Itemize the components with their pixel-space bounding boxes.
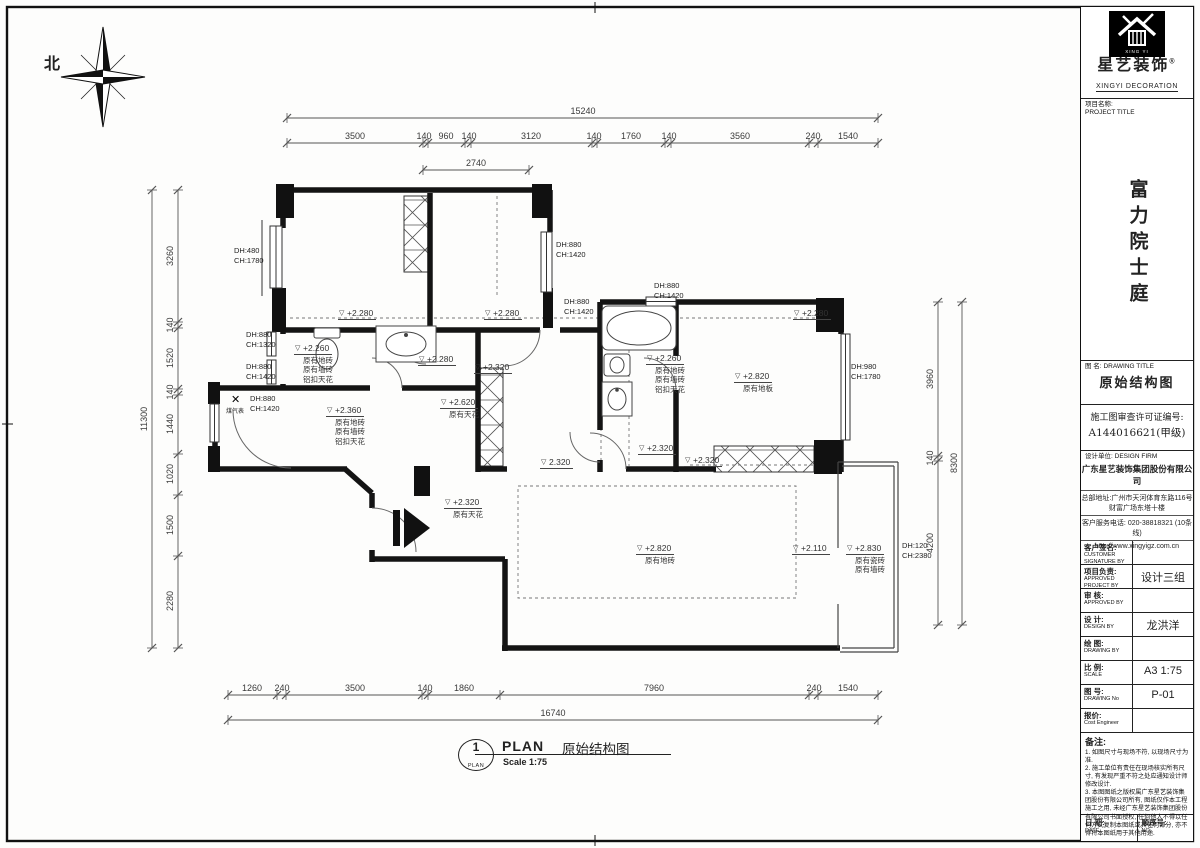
opening-size-label: DH:480CH:1780 [234,246,264,266]
opening-size-label: DH:880CH:1420 [246,362,276,382]
frame-center-ticks [2,2,595,846]
dimension-label: 140 [416,131,431,141]
dimension-label: 1860 [454,683,474,693]
field-value: 设计三组 [1133,565,1193,588]
title-block: XING YI 星艺装饰® XINGYI DECORATION 项目名称:PRO… [1081,7,1193,841]
field-value: 龙洪洋 [1133,613,1193,636]
field-label: 图 号:DRAWING No [1081,685,1133,708]
level-label: +2.820▽原有地板 [734,366,773,393]
dimension-label: 140 [165,317,175,332]
footer-row: 日 期: DATE 顺序号: NO. [1081,815,1193,841]
level-label: +2.830▽原有瓷砖原有墙砖 [846,538,885,575]
signoff-row: 比 例:SCALEA3 1:75 [1081,661,1193,685]
dimension-label: 140 [417,683,432,693]
firm-address-1: 总部地址:广州市天河体育东路116号 [1081,490,1193,503]
field-value [1133,541,1193,564]
opening-size-label: DH:980CH:1780 [851,362,881,382]
dimension-label: 140 [165,384,175,399]
dimension-label: 7960 [644,683,664,693]
level-label: +2.260▽原有地砖原有墙砖铝扣天花 [294,338,333,384]
entrance-arrow-icon [393,508,430,548]
project-name: 富力院士庭 [1081,139,1193,349]
firm-address-2: 财富广场东塔十楼 [1081,503,1193,513]
brand-name-cn: 星艺装饰® [1081,58,1193,75]
field-label: 报价:Cost Engineer [1081,709,1133,732]
dimension-label: 3120 [521,131,541,141]
level-label: +2.260▽原有地砖原有墙砖铝扣天花 [646,348,685,394]
dimension-label: 240 [806,683,821,693]
level-label: +2.820▽原有地砖 [636,538,675,565]
drawing-title-label: 图 名: DRAWING TITLE [1081,361,1193,371]
dimension-label: 3560 [730,131,750,141]
dimension-label: 2740 [466,158,486,168]
plan-number-bubble: 1 PLAN [458,739,494,771]
dimension-label: 3960 [925,369,935,389]
dimension-label: 1540 [838,683,858,693]
note-item: 2. 施工单位有责任在现场核实所有尺寸, 有发现严重不符之处应通知设计师修改设计… [1081,765,1193,789]
drawing-title-value: 原始结构图 [1081,372,1193,391]
dimension-label: 11300 [139,407,149,431]
dimension-label: 140 [461,131,476,141]
gas-meter-icon: ✕ [231,393,240,406]
registered-mark: ® [1169,59,1176,66]
dimension-label: 1020 [165,464,175,484]
dimension-label: 3500 [345,683,365,693]
firm-phone: 客户服务电话: 020-38818321 (10条线) [1081,515,1193,538]
dimension-label: 140 [661,131,676,141]
plan-number-sub: PLAN [459,763,493,769]
signoff-row: 审 核:APPROVED BY [1081,589,1193,613]
signoff-row: 图 号:DRAWING NoP-01 [1081,685,1193,709]
level-label: +2.620▽原有天花 [440,392,479,419]
dimension-label: 1500 [165,515,175,535]
level-label: +2.320▽ [638,438,676,456]
project-section: 项目名称:PROJECT TITLE 富力院士庭 [1081,99,1193,361]
design-firm-section: 设计单位: DESIGN FIRM 广东星艺装饰集团股份有限公司 总部地址:广州… [1081,451,1193,541]
drawing-sheet: 北 15240350014096014031201401760140356024… [0,0,1200,848]
level-label: +2.320▽ [684,450,722,468]
note-item: 1. 如图尺寸与现场不符, 以现场尺寸为准. [1081,749,1193,765]
opening-size-label: DH:880CH:1420 [564,297,594,317]
dimension-label: 1440 [165,414,175,434]
dimension-label: 15240 [570,106,595,116]
permit-label: 施工图审查许可证编号: [1081,410,1193,423]
field-value: P-01 [1133,685,1193,708]
logo-caption: XING YI [1109,49,1165,54]
dimension-label: 140 [925,450,935,465]
company-logo-icon: XING YI [1109,11,1165,57]
field-label: 审 核:APPROVED BY [1081,589,1133,612]
field-label: 设 计:DESIGN BY [1081,613,1133,636]
dimension-label: 16740 [540,708,565,718]
opening-size-label: DH:880CH:1420 [250,394,280,414]
permit-number: A144016621(甲级) [1081,425,1193,440]
level-label: +2.280▽ [338,303,376,321]
opening-size-label: DH:880CH:1420 [556,240,586,260]
plan-number: 1 [459,740,493,754]
dimension-label: 2280 [165,591,175,611]
gas-meter-label: 煤气表 [226,406,244,415]
level-label: +2.360▽原有地砖原有墙砖铝扣天花 [326,400,365,446]
field-label: 客户签名:CUSTOMER SIGNATURE BY [1081,541,1133,564]
level-label: 2.320▽ [540,452,573,470]
dimension-label: 1520 [165,348,175,368]
plan-title: 1 PLAN PLAN 原始结构图 Scale 1:75 [458,736,688,780]
level-label: +2.280▽ [418,349,456,367]
dimension-label: 1260 [242,683,262,693]
brand-name-en: XINGYI DECORATION [1096,83,1178,92]
floor-plan-drawing [0,0,1200,848]
field-value [1133,589,1193,612]
signoff-row: 绘 图:DRAWING BY [1081,637,1193,661]
walls [215,190,841,651]
field-value [1133,637,1193,660]
notes-section: 备注: 1. 如图尺寸与现场不符, 以现场尺寸为准.2. 施工单位有责任在现场核… [1081,733,1193,815]
dimension-label: 3500 [345,131,365,141]
signoff-row: 设 计:DESIGN BY龙洪洋 [1081,613,1193,637]
date-cell: 日 期: DATE [1081,815,1138,841]
plan-scale: Scale 1:75 [503,757,547,767]
dimension-label: 960 [438,131,453,141]
dimension-label: 140 [586,131,601,141]
dimension-label: 8300 [949,453,959,473]
notes-label: 备注: [1081,733,1193,749]
plan-name: 原始结构图 [562,738,630,758]
permit-section: 施工图审查许可证编号: A144016621(甲级) [1081,405,1193,451]
opening-size-label: DH:120CH:2380 [902,541,932,561]
sequence-cell: 顺序号: NO. [1138,815,1194,841]
level-label: +2.320▽ [474,357,512,375]
field-label: 绘 图:DRAWING BY [1081,637,1133,660]
opening-size-label: DH:880CH:1420 [654,281,684,301]
north-arrow-icon [61,27,145,127]
field-value: A3 1:75 [1133,661,1193,684]
level-label: +2.280▽ [484,303,522,321]
signoff-table: 客户签名:CUSTOMER SIGNATURE BY项目负责:APPROVED … [1081,541,1193,733]
firm-company: 广东星艺装饰集团股份有限公司 [1081,463,1193,487]
brand-cn-text: 星艺装饰 [1097,57,1169,74]
field-label: 项目负责:APPROVED PROJECT BY [1081,565,1133,588]
field-value [1133,709,1193,732]
plan-tag: PLAN [502,738,544,754]
signoff-row: 客户签名:CUSTOMER SIGNATURE BY [1081,541,1193,565]
level-label: +2.320▽原有天花 [444,492,483,519]
firm-label: 设计单位: DESIGN FIRM [1081,451,1193,461]
field-label: 比 例:SCALE [1081,661,1133,684]
dimension-label: 240 [805,131,820,141]
dimension-label: 3260 [165,246,175,266]
signoff-row: 报价:Cost Engineer [1081,709,1193,733]
north-label: 北 [44,50,60,74]
brand-section: XING YI 星艺装饰® XINGYI DECORATION [1081,7,1193,99]
level-label: +2.110▽ [792,538,830,556]
project-label: 项目名称:PROJECT TITLE [1081,99,1193,117]
dimension-label: 1540 [838,131,858,141]
drawing-title-section: 图 名: DRAWING TITLE 原始结构图 [1081,361,1193,405]
level-label: +2.280▽ [793,303,831,321]
signoff-row: 项目负责:APPROVED PROJECT BY设计三组 [1081,565,1193,589]
dimension-label: 240 [274,683,289,693]
opening-size-label: DH:880CH:1320 [246,330,276,350]
dimension-label: 1760 [621,131,641,141]
